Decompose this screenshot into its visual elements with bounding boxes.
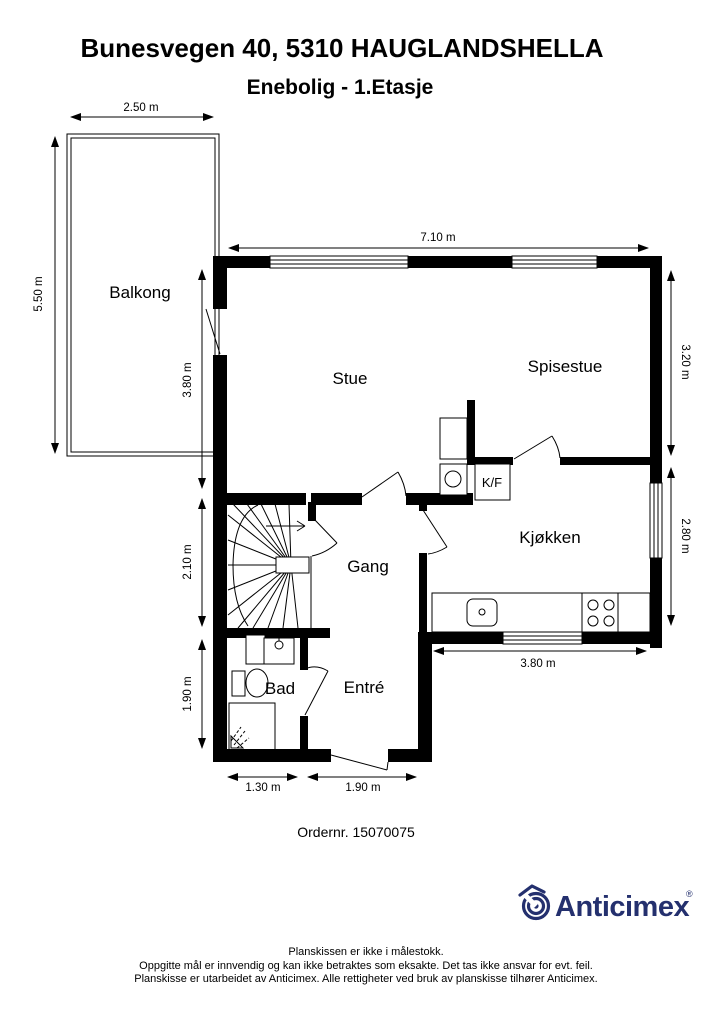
staircase [228,504,311,628]
shower-icon [229,703,275,750]
room-label-bad: Bad [265,679,295,698]
room-label-entre: Entré [344,678,385,697]
window-top-right [512,256,597,268]
footer-line-3: Planskisse er utarbeidet av Anticimex. A… [134,973,597,987]
window-kitchen-east [650,483,662,558]
anticimex-swirl-house-icon [520,886,549,919]
dim-top-width: 7.10 m [420,232,455,244]
dim-balkong-depth: 5.50 m [33,276,45,311]
stair-landing [276,557,309,573]
footer-line-1: Planskissen er ikke i målestokk. [134,946,597,960]
stair-direction-arrow [266,521,305,531]
floor-plan: 2.50 m 5.50 m 7.10 m 3.80 m 2.10 m 1.90 … [0,0,724,1024]
registered-trademark: ® [686,889,693,899]
room-label-balkong: Balkong [109,283,170,302]
door-gang-kjokken [423,510,447,554]
dim-kjokken-bottom: 3.80 m [520,658,555,670]
anticimex-logo: Anticimex ® [513,884,703,928]
door-spisestue-kjokken [514,436,560,459]
bath-cabinet [246,635,265,664]
room-label-spisestue: Spisestue [528,357,603,376]
dim-stue-left: 3.80 m [182,362,194,397]
dim-bad-left: 1.90 m [182,676,194,711]
door-bad [305,667,328,715]
footer-line-2: Oppgitte mål er innvendig og kan ikke be… [134,960,597,974]
room-label-stue: Stue [333,369,368,388]
footer-disclaimer: Planskissen er ikke i målestokk. Oppgitt… [134,946,597,987]
room-label-gang: Gang [347,557,389,576]
kitchen-counter [432,593,650,632]
dim-balkong-width: 2.50 m [123,102,158,114]
appliance-cabinets [440,418,467,495]
washbasin-icon [264,638,294,664]
window-top-left [270,256,408,268]
toilet-icon [232,669,268,697]
order-number: Ordernr. 15070075 [297,824,415,840]
window-kitchen-south [503,632,582,644]
anticimex-logo-text: Anticimex [555,891,689,923]
dim-bad-bottom: 1.30 m [245,782,280,794]
door-stue-gang [362,472,406,497]
dim-kjokken-right: 2.80 m [679,518,691,553]
dim-gang-left: 2.10 m [182,544,194,579]
door-entrance [331,755,388,770]
dim-entre-bottom: 1.90 m [345,782,380,794]
door-stairs [312,519,337,556]
dim-spisestue-right: 3.20 m [679,344,691,379]
door-balcony [206,309,220,354]
room-label-kf: K/F [482,475,502,490]
room-label-kjokken: Kjøkken [519,528,580,547]
